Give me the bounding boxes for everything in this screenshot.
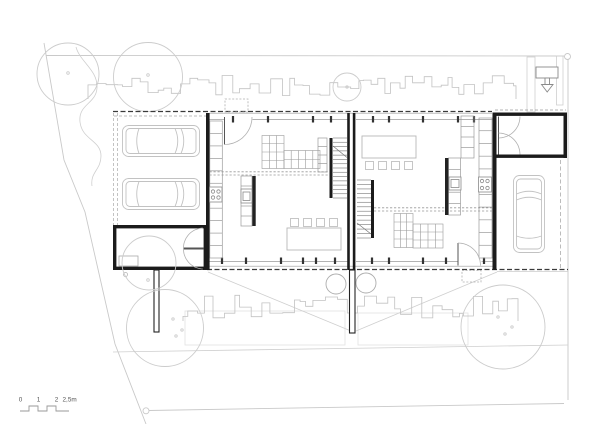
entry-walkway — [557, 56, 564, 105]
building — [113, 99, 568, 333]
storage-wall-east — [204, 225, 207, 270]
door — [499, 133, 521, 155]
garden-path — [76, 47, 101, 186]
facade-mullion — [280, 258, 282, 265]
facade-mullion — [330, 116, 332, 123]
storage-wall-north — [113, 225, 207, 228]
survey-marker — [143, 408, 149, 414]
party-wall — [353, 113, 356, 270]
boundary-north — [46, 56, 564, 57]
stair-stringer — [371, 180, 374, 238]
kitchen-fin-wall — [445, 158, 448, 215]
chair — [304, 219, 312, 227]
boundary-south — [149, 404, 564, 411]
scale-bar-steps — [20, 406, 69, 411]
terrace-diagonal — [208, 272, 351, 331]
garden-wall-fins — [154, 270, 355, 333]
facade-mullion — [457, 116, 459, 123]
survey-marker — [565, 54, 571, 60]
tree — [461, 285, 545, 369]
facade-mullion — [267, 116, 269, 123]
facade-mullion — [302, 258, 304, 265]
kitchen-fin-wall — [252, 176, 255, 226]
terrace-edge — [113, 345, 568, 352]
door-swing-arc — [184, 228, 203, 248]
facade-mullion — [312, 116, 314, 123]
facade-mullion — [372, 116, 374, 123]
dining-table — [362, 136, 416, 158]
scale-label: 0 — [19, 397, 23, 404]
door-swing-arc — [225, 117, 253, 145]
facade-mullion — [422, 116, 424, 123]
tree-trunk — [511, 326, 513, 328]
facade-mullion — [245, 258, 247, 265]
stair — [357, 180, 374, 238]
door — [184, 249, 204, 269]
doormat — [225, 99, 248, 112]
scale-label: 2,5m — [63, 397, 77, 404]
door-swing-arc — [184, 249, 203, 269]
cooktop — [210, 187, 223, 202]
stairs — [330, 138, 375, 238]
entrance-marker — [536, 67, 558, 92]
vestibule-wall-north — [493, 113, 568, 116]
door-swing-arc — [458, 243, 481, 266]
scale-bar: 0 1 2 2,5m — [19, 397, 77, 412]
tree-trunk — [172, 318, 174, 320]
garden-wall-fin — [350, 270, 356, 333]
facade-mullion — [334, 258, 336, 265]
furniture — [287, 136, 416, 250]
boundary-west — [44, 43, 146, 424]
floor-plan-page: 0 1 2 2,5m — [0, 0, 600, 424]
tree — [127, 290, 204, 367]
tree-trunk — [147, 279, 150, 282]
tree — [114, 43, 183, 112]
stair — [330, 138, 348, 198]
chair — [317, 219, 325, 227]
door — [458, 243, 481, 266]
entrance-arrow-icon — [545, 78, 550, 85]
chair — [330, 219, 338, 227]
entrance-arrow-icon — [542, 85, 554, 93]
car — [123, 126, 200, 157]
hedge-outline — [88, 76, 516, 100]
storage-wall-west — [113, 225, 116, 270]
storage-wall-south — [113, 267, 207, 270]
chair — [291, 219, 299, 227]
facade-mullion — [371, 258, 373, 265]
door-swing-arc — [499, 133, 521, 155]
scale-label: 2 — [55, 397, 59, 404]
lawn-patch — [185, 311, 345, 345]
chair — [379, 162, 387, 170]
vestibule-wall-east — [564, 113, 568, 159]
trees-south — [122, 236, 545, 369]
door — [225, 117, 253, 145]
dining-table — [287, 228, 341, 250]
scale-label: 1 — [37, 397, 41, 404]
doors — [184, 117, 521, 270]
facade-mullion — [483, 258, 485, 265]
entrance-sign — [536, 67, 558, 78]
facade-mullion — [388, 116, 390, 123]
shrub — [356, 273, 376, 293]
terrace-diagonal — [356, 272, 497, 331]
car — [123, 179, 200, 210]
lawn-patch — [358, 313, 468, 345]
facade-mullion — [221, 258, 223, 265]
facade-mullion — [232, 116, 234, 123]
tree-trunk — [504, 333, 506, 335]
shrub — [326, 274, 346, 294]
chair — [405, 162, 413, 170]
hedge-top — [88, 76, 516, 100]
tree-trunk — [497, 316, 499, 318]
garden-wall-fin — [154, 270, 159, 332]
car — [514, 176, 545, 253]
tree-trunk — [147, 74, 150, 77]
tree-trunk — [181, 329, 183, 331]
door-swing-arc — [499, 117, 521, 139]
trees-north — [37, 43, 361, 112]
tree-trunk — [67, 72, 70, 75]
facade-mullion — [445, 258, 447, 265]
facade-mullion — [315, 258, 317, 265]
chair — [392, 162, 400, 170]
facade-mullion — [422, 258, 424, 265]
facade-mullion — [388, 258, 390, 265]
vestibule-wall-south — [497, 155, 568, 158]
floor-plan-canvas: 0 1 2 2,5m — [0, 0, 600, 424]
door — [499, 117, 521, 139]
door — [184, 228, 204, 248]
chair — [366, 162, 374, 170]
entry-walkway — [527, 57, 535, 112]
stair-direction-line — [333, 146, 347, 158]
tree-trunk — [175, 335, 177, 337]
wall-east — [493, 113, 497, 270]
stair-stringer — [330, 138, 333, 198]
cooktop — [479, 177, 492, 192]
party-wall — [347, 113, 350, 270]
